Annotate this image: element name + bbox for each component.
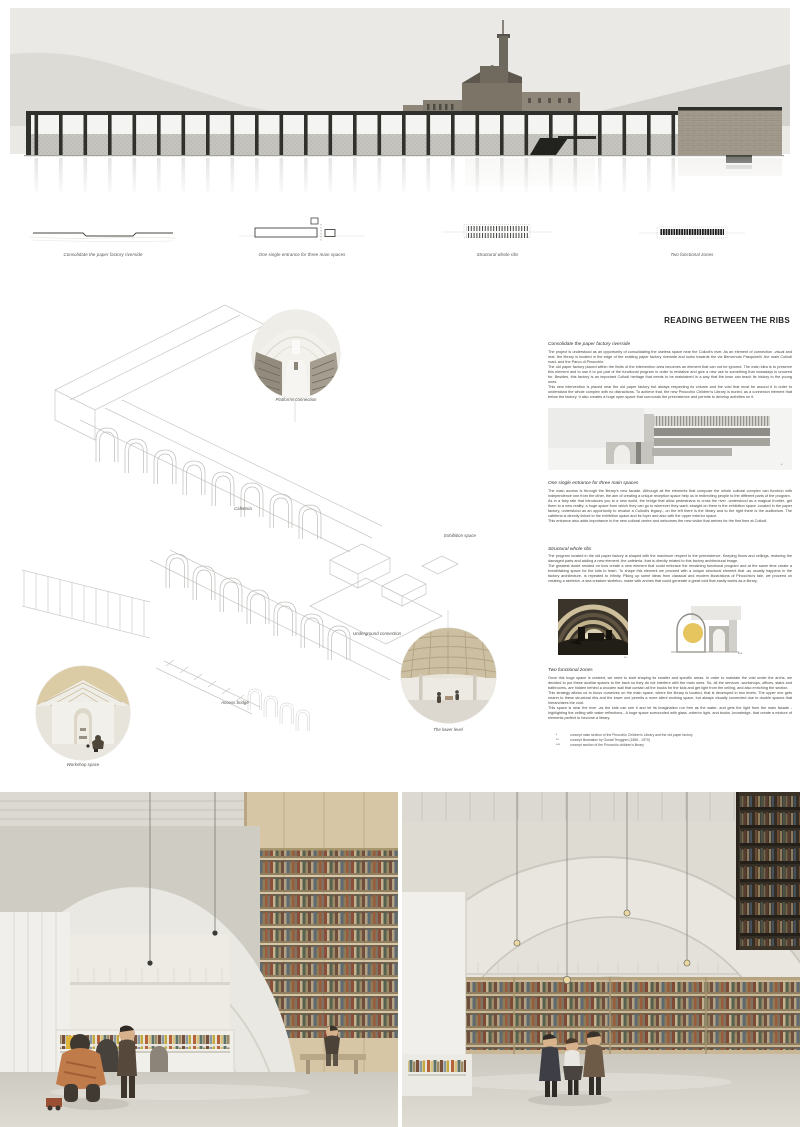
water-reflection — [10, 155, 790, 200]
label-cafeteria: Cafeteria — [234, 506, 252, 511]
footnote-text: concept section of the Pinocchio childre… — [570, 743, 644, 747]
diagram-caption: Two functional zones — [637, 252, 747, 257]
footnote-1: * concept main section of the Pinocchio … — [556, 733, 794, 737]
section-body-4: Once this huge space is created, we need… — [548, 676, 792, 721]
render-left-interior — [0, 792, 398, 1127]
diagram-ribs-graphic — [440, 222, 555, 242]
diagram-caption: One single entrance for three main space… — [237, 252, 367, 257]
footnote-text: concept illustration by Gustaf Tenggren … — [570, 738, 650, 742]
footnote-2: ** concept illustration by Gustaf Tenggr… — [556, 738, 794, 742]
label-lower-level: The lower level — [433, 727, 463, 732]
rib-colonnade — [26, 107, 782, 155]
section-body-2: The main access is through the library's… — [548, 489, 792, 524]
concept-diagram-riverside: Consolidate the paper factory riverside — [28, 226, 178, 257]
label-platforms-connection: Platforms connection — [276, 397, 317, 402]
footnotes: * concept main section of the Pinocchio … — [556, 733, 794, 748]
label-workshop-space: Workshop space — [67, 762, 100, 767]
diagram-riverside-graphic — [28, 226, 178, 242]
label-exhibition-space: Exhibition space — [444, 533, 476, 538]
riverside-elevation-drawing — [10, 8, 790, 200]
concept-diagram-entrance: One single entrance for three main space… — [237, 216, 367, 257]
footnote-3: *** concept section of the Pinocchio chi… — [556, 743, 794, 747]
board-title: READING BETWEEN THE RIBS — [540, 316, 790, 325]
footnote-mark: ** — [556, 738, 564, 742]
section-body-1: The project is understood as an opportun… — [548, 350, 792, 400]
inset-photo-lower-level — [401, 628, 496, 723]
section-heading-1: Consolidate the paper factory riverside — [548, 342, 792, 347]
label-access-bridge: Access bridge — [221, 700, 249, 705]
inset-photo-platforms-connection — [252, 310, 340, 398]
section-heading-4: Two functional zones — [548, 668, 792, 673]
presentation-board: Consolidate the paper factory riverside … — [0, 0, 800, 1127]
figure-mark-whale: ** — [624, 656, 627, 660]
diagram-zones-graphic — [637, 224, 747, 242]
wooden-bookshelf-band — [466, 977, 800, 1054]
footnote-mark: * — [556, 733, 564, 737]
label-underground-connection: Underground connection — [353, 631, 401, 636]
footnote-mark: *** — [556, 743, 564, 747]
diagram-caption: Consolidate the paper factory riverside — [28, 252, 178, 257]
concept-diagram-ribs: Structural whole ribs — [440, 222, 555, 257]
render-right-interior — [402, 792, 800, 1127]
inset-photo-workshop-space — [36, 666, 130, 760]
footnote-text: concept main section of the Pinocchio Ch… — [570, 733, 693, 737]
section-heading-2: One single entrance for three main space… — [548, 481, 792, 486]
dark-bookshelf-upper-right — [736, 792, 800, 950]
figure-mark-section: * — [781, 463, 782, 467]
low-shelf — [402, 1054, 472, 1096]
figure-concept-section — [548, 408, 792, 470]
diagram-entrance-graphic — [237, 216, 367, 242]
figure-arch-sketch — [663, 606, 741, 654]
figure-whale-illustration — [558, 599, 628, 655]
diagram-caption: Structural whole ribs — [440, 252, 555, 257]
section-heading-3: Structural whole ribs — [548, 547, 792, 552]
figure-mark-sketch: *** — [738, 652, 742, 656]
concept-diagram-zones: Two functional zones — [637, 224, 747, 257]
section-body-3: The program located in the old paper fac… — [548, 554, 792, 584]
